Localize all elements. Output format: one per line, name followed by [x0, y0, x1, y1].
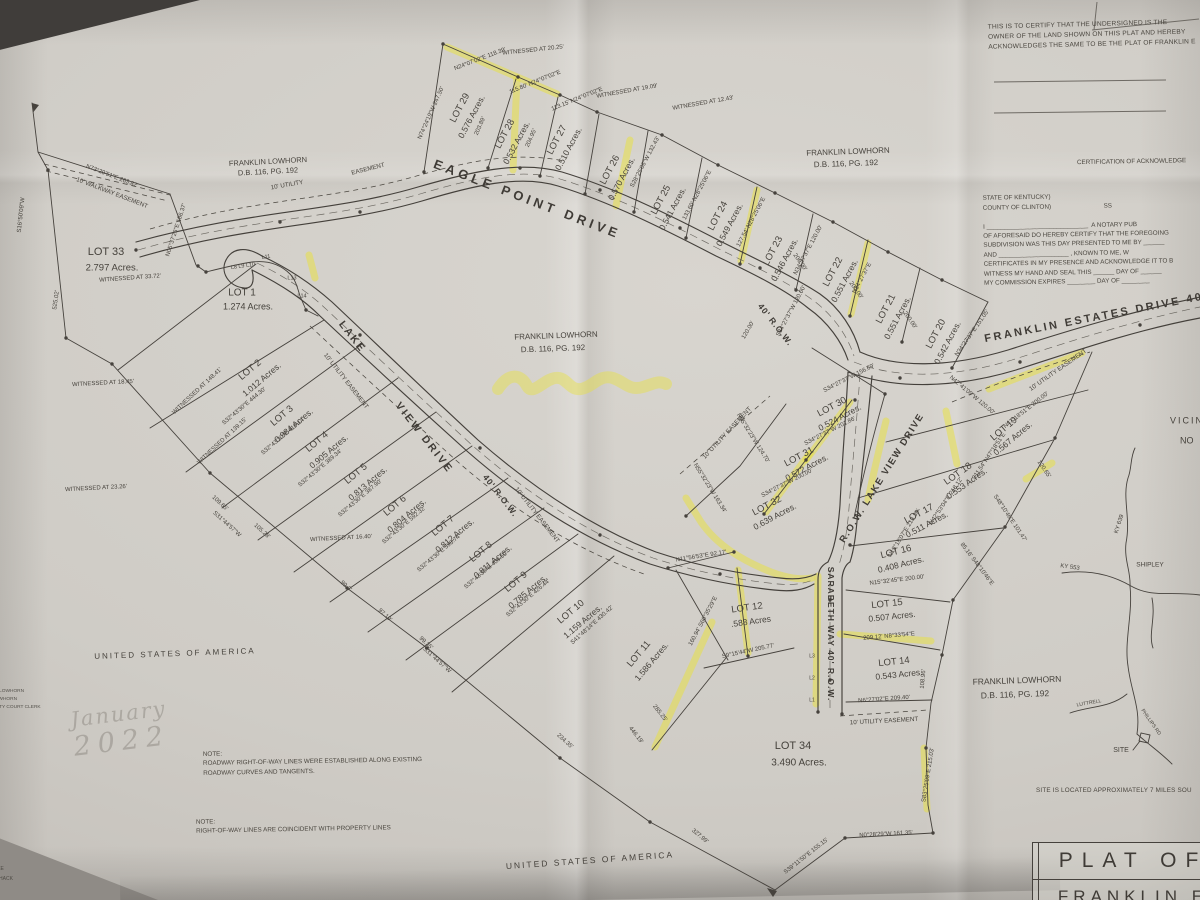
- map-label: D.B. 116, PG. 192: [521, 343, 586, 354]
- map-line: [406, 534, 578, 660]
- map-label: PHILLIPS RD: [1140, 708, 1163, 737]
- survey-point: [558, 93, 561, 96]
- survey-point: [134, 248, 137, 251]
- text-line: Y TREE: [0, 864, 13, 875]
- map-label: N74°24'19"W 247.50': [417, 86, 446, 140]
- site-location-note: SITE IS LOCATED APPROXIMATELY 7 MILES SO…: [1036, 786, 1192, 795]
- map-label: 327.99': [690, 828, 709, 845]
- map-label: WITNESSED AT 148.41': [171, 367, 223, 416]
- date-stamp: January 2022: [69, 696, 172, 762]
- map-label: D.B. 116, PG. 192: [238, 165, 299, 177]
- survey-point: [794, 288, 797, 291]
- acknowledgment-title: CERTIFICATION OF ACKNOWLEDGE: [1077, 156, 1186, 167]
- survey-point: [924, 746, 927, 749]
- survey-point: [486, 166, 489, 169]
- survey-point: [558, 756, 561, 759]
- map-label: WITNESSED AT 33.72': [99, 273, 161, 283]
- map-label: NO: [1180, 435, 1194, 445]
- left-margin-text: FRANKLIN LOWHORN& RETA LOWHORNTHE COUNTY…: [0, 688, 41, 712]
- map-label: UNITED STATES OF AMERICA: [506, 849, 675, 871]
- map-label: 133.60' N28°25'06"E: [682, 169, 713, 221]
- map-label: D.B. 116, PG. 192: [981, 688, 1050, 700]
- map-label: S31°44'57"W: [211, 510, 242, 538]
- map-label: 525.02': [52, 290, 61, 310]
- survey-point: [898, 376, 901, 379]
- map-label: 0.507 Acres.: [868, 609, 916, 624]
- map-label: VIEW DRIVE: [393, 400, 456, 476]
- map-label: LOT 14: [878, 655, 910, 669]
- survey-point: [678, 226, 681, 229]
- map-label: LOT 12: [731, 600, 764, 615]
- map-label: S39°11'50"E 155.15': [783, 837, 830, 875]
- plat-title: PLAT OF: [1033, 843, 1200, 880]
- map-label: 109.65': [210, 495, 229, 513]
- survey-point: [204, 270, 207, 273]
- map-label: EASEMENT: [351, 162, 386, 177]
- map-label: .588 Acres: [730, 614, 771, 629]
- map-label: KY 639: [1114, 513, 1126, 534]
- title-block: PLAT OF FRANKLIN E: [1032, 842, 1200, 900]
- survey-point: [518, 166, 521, 169]
- highlighter-mark: [498, 377, 666, 390]
- highlighter-mark: [946, 411, 957, 464]
- map-line: [1151, 598, 1153, 648]
- survey-point: [1053, 436, 1056, 439]
- survey-point: [940, 278, 943, 281]
- map-label: S31°44'57"W: [421, 646, 452, 674]
- plat-subtitle: FRANKLIN E: [1033, 880, 1200, 900]
- survey-point: [196, 264, 199, 267]
- map-label: 10' WALKWAY EASEMENT: [75, 176, 149, 210]
- survey-point: [848, 314, 851, 317]
- map-label: WITNESSED AT 12.43': [672, 95, 734, 112]
- map-label: LAKE: [336, 319, 368, 355]
- map-label: 234.35': [555, 733, 574, 751]
- survey-point: [840, 712, 843, 715]
- map-label: N0°28'29"W 161.35': [859, 830, 913, 839]
- survey-point: [732, 550, 735, 553]
- map-label: N55°32'23"W 124.70': [735, 413, 770, 464]
- plat-drawing: LOT 290.576 Acres.LOT 280.532 Acres.LOT …: [0, 0, 1200, 900]
- survey-point: [931, 831, 934, 834]
- map-label: L11: [261, 254, 271, 261]
- corner-legend-fragment: A 5/8"Y TREENEW HACK: [0, 853, 13, 885]
- map-line: [1126, 448, 1135, 586]
- survey-point: [660, 133, 663, 136]
- map-label: LOT 15: [871, 597, 903, 611]
- map-line: [1137, 734, 1172, 764]
- survey-point: [831, 220, 834, 223]
- survey-point: [900, 340, 903, 343]
- map-label: 108.96': [920, 669, 928, 689]
- plat-photo: LOT 290.576 Acres.LOT 280.532 Acres.LOT …: [0, 0, 1200, 900]
- map-label: 285.25': [651, 704, 668, 723]
- map-label: L14: [297, 293, 306, 299]
- map-label: SHIPLEY: [1136, 562, 1164, 569]
- survey-point: [886, 250, 889, 253]
- map-line: [994, 111, 1166, 113]
- map-line: [1133, 741, 1140, 750]
- text-line: NEW HACK: [0, 874, 13, 885]
- map-label: 203.89': [474, 116, 487, 136]
- roadway-note: NOTE:ROADWAY RIGHT-OF-WAY LINES WERE EST…: [203, 746, 422, 778]
- survey-point: [598, 533, 601, 536]
- map-label: 1.274 Acres.: [223, 301, 273, 311]
- survey-point: [773, 191, 776, 194]
- map-line: [994, 80, 1166, 82]
- survey-point: [358, 210, 361, 213]
- map-label: L1: [809, 697, 815, 703]
- survey-point: [208, 471, 211, 474]
- map-label: FRANKLIN LOWHORN: [806, 146, 890, 158]
- survey-point: [304, 308, 307, 311]
- survey-point: [278, 220, 281, 223]
- map-label: SARABETH WAY 40' R.O.W.: [826, 567, 836, 702]
- map-line: [32, 103, 112, 364]
- survey-point: [538, 174, 541, 177]
- map-label: 3.490 Acres.: [771, 758, 827, 769]
- map-label: 10' UTILITY EASEMENT: [701, 406, 753, 461]
- map-label: 0.543 Acres.: [875, 667, 923, 682]
- map-label: L13: [287, 275, 296, 281]
- notary-acknowledgment: CERTIFICATION OF ACKNOWLEDGE STATE OF KE…: [982, 137, 1189, 307]
- map-label: N42°41'09"W 120.00': [948, 375, 995, 416]
- map-label: S32°43'30"E 598.74': [416, 534, 462, 574]
- survey-point: [583, 192, 586, 195]
- survey-point: [1138, 323, 1141, 326]
- map-label: N15°32'45"E 200.00': [869, 574, 925, 587]
- highlighter-mark: [309, 255, 315, 278]
- survey-point: [718, 572, 721, 575]
- survey-point: [848, 543, 851, 546]
- survey-point: [816, 710, 819, 713]
- survey-point: [716, 163, 719, 166]
- survey-point: [684, 236, 687, 239]
- highlighter-mark: [655, 622, 712, 747]
- map-label: WITNESSED AT 19.09': [596, 83, 658, 100]
- map-label: WITNESSED AT 16.40': [310, 534, 372, 543]
- map-label: LOT 33: [88, 246, 125, 258]
- map-label: 446.19': [627, 726, 644, 745]
- map-label: N11°56'53"E 92.17': [675, 550, 727, 564]
- map-label: S34°27'37"W 120.00': [776, 285, 808, 338]
- map-label: 10' UTILITY EASEMENT: [513, 486, 561, 544]
- survey-point: [595, 110, 598, 113]
- map-line: [812, 348, 885, 394]
- map-label: LOT 34: [775, 740, 812, 752]
- survey-point: [738, 262, 741, 265]
- map-label: FRANKLIN LOWHORN: [514, 330, 598, 342]
- survey-point: [951, 598, 954, 601]
- map-line: [1062, 572, 1200, 595]
- text-line: A 5/8": [0, 853, 13, 864]
- map-label: KY 553: [1060, 563, 1081, 572]
- survey-point: [950, 366, 953, 369]
- map-label: WITNESSED AT 23.26': [65, 484, 127, 493]
- survey-point: [1003, 525, 1006, 528]
- survey-point: [666, 566, 669, 569]
- text-line: & RETA LOWHORN: [0, 696, 41, 704]
- survey-point: [46, 168, 49, 171]
- survey-point: [632, 210, 635, 213]
- survey-points: [46, 42, 1141, 839]
- map-label: VICINIT: [1170, 415, 1200, 425]
- map-label: 113.15' N24°07'02"E: [551, 86, 604, 112]
- map-label: 10' UTILITY EASEMENT: [322, 352, 370, 410]
- map-line: [1139, 733, 1150, 743]
- survey-point: [758, 266, 761, 269]
- map-label: 200.00': [901, 311, 917, 330]
- survey-point: [598, 188, 601, 191]
- right-of-way-note: NOTE:RIGHT-OF-WAY LINES ARE COINCIDENT W…: [196, 814, 391, 836]
- survey-point: [648, 820, 651, 823]
- map-line: [1127, 586, 1138, 734]
- survey-point: [110, 362, 113, 365]
- survey-point: [478, 446, 481, 449]
- map-line: [112, 364, 775, 890]
- map-label: S16°50'09"W: [17, 197, 27, 233]
- map-label: 120.00': [741, 320, 756, 340]
- survey-point: [516, 75, 519, 78]
- map-label: LOT 1: [228, 288, 256, 299]
- map-label: L3: [809, 653, 815, 659]
- survey-point: [853, 398, 856, 401]
- survey-point: [422, 170, 425, 173]
- owner-certification: THIS IS TO CERTIFY THAT THE UNDERSIGNED …: [988, 17, 1196, 52]
- map-label: D.B. 116, PG. 192: [814, 158, 879, 169]
- survey-point: [843, 836, 846, 839]
- map-label: L2: [809, 675, 815, 681]
- map-label: 2.797 Acres.: [86, 263, 139, 274]
- map-label: S48°10'46"E 101.47': [992, 494, 1028, 543]
- acknowledgment-body: STATE OF KENTUCKY)COUNTY OF CLINTON) SS …: [982, 190, 1188, 288]
- map-label: 10' UTILITY: [270, 179, 304, 192]
- map-label: SITE: [1113, 747, 1129, 754]
- text-line: THE COUNTY COURT CLERK: [0, 704, 41, 712]
- survey-point: [684, 514, 687, 517]
- map-label: UNITED STATES OF AMERICA: [94, 646, 256, 661]
- text-line: FRANKLIN LOWHORN: [0, 688, 41, 696]
- map-label: LUTTRELL: [1076, 698, 1102, 708]
- survey-point: [441, 42, 444, 45]
- survey-point: [940, 653, 943, 656]
- map-label: N6°27'02"E 209.40': [858, 695, 910, 705]
- survey-point: [1018, 360, 1021, 363]
- map-label: FRANKLIN LOWHORN: [972, 674, 1061, 687]
- map-label: N55°32'23"W 163.34': [692, 463, 727, 514]
- map-label: WITNESSED AT 18.45': [72, 379, 134, 388]
- map-label: 211.54' N47°18'51"E: [972, 432, 1008, 481]
- survey-point: [883, 392, 886, 395]
- map-label: 10' UTILITY EASEMENT: [850, 716, 919, 727]
- map-line: [850, 528, 1003, 546]
- survey-point: [64, 336, 67, 339]
- map-label: WITNESSED AT 20.25': [502, 44, 564, 56]
